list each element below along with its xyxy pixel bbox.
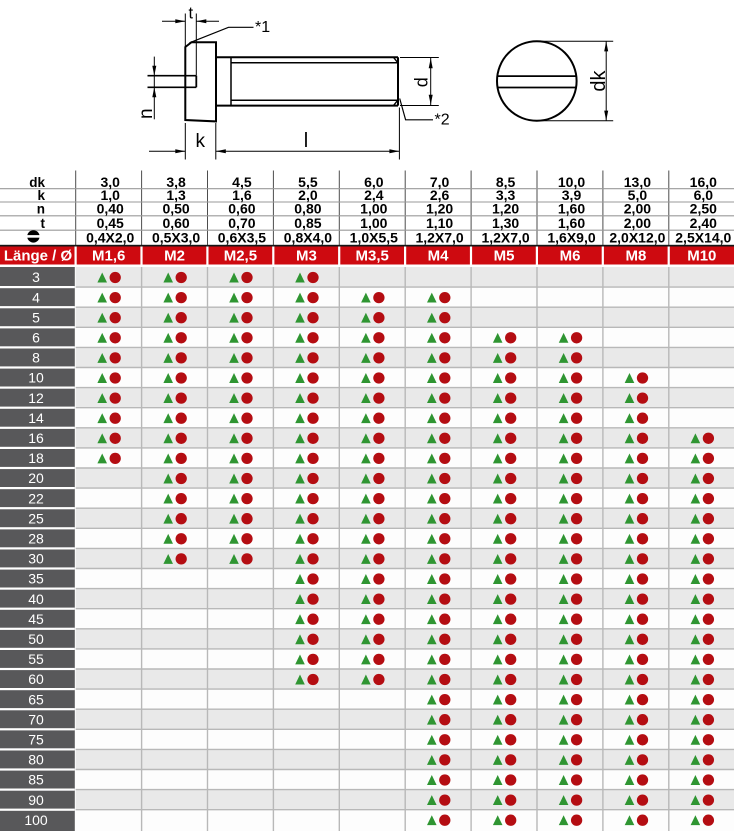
svg-text:M2: M2 [164, 248, 185, 265]
svg-text:M2,5: M2,5 [224, 248, 257, 265]
svg-text:6: 6 [32, 330, 40, 346]
svg-text:80: 80 [28, 752, 44, 768]
svg-text:70: 70 [28, 711, 44, 727]
svg-text:1,2X7,0: 1,2X7,0 [481, 230, 529, 246]
svg-text:22: 22 [28, 490, 44, 506]
svg-text:0,60: 0,60 [162, 215, 189, 231]
svg-text:t: t [41, 216, 46, 231]
svg-text:0,6X3,5: 0,6X3,5 [218, 230, 266, 246]
svg-text:*1: *1 [255, 19, 270, 36]
svg-text:25: 25 [28, 510, 44, 526]
svg-text:18: 18 [28, 450, 44, 466]
svg-text:M10: M10 [687, 248, 716, 265]
svg-text:0,70: 0,70 [228, 215, 255, 231]
svg-text:n: n [136, 108, 157, 119]
svg-text:M3,5: M3,5 [356, 248, 389, 265]
svg-text:0,4X2,0: 0,4X2,0 [86, 230, 134, 246]
svg-text:100: 100 [24, 812, 48, 828]
svg-text:5: 5 [32, 309, 40, 325]
svg-text:30: 30 [28, 551, 44, 567]
svg-text:50: 50 [28, 631, 44, 647]
svg-text:1,10: 1,10 [426, 215, 453, 231]
svg-text:12: 12 [28, 390, 44, 406]
svg-text:35: 35 [28, 571, 44, 587]
svg-text:8: 8 [32, 350, 40, 366]
svg-text:10: 10 [28, 370, 44, 386]
svg-text:1,6X9,0: 1,6X9,0 [547, 230, 595, 246]
svg-text:*2: *2 [435, 112, 450, 129]
svg-text:85: 85 [28, 772, 44, 788]
svg-text:d: d [411, 77, 431, 87]
svg-text:t: t [189, 4, 194, 22]
svg-text:Länge / Ø: Länge / Ø [4, 248, 73, 265]
svg-text:3: 3 [32, 269, 40, 285]
svg-text:0,5X3,0: 0,5X3,0 [152, 230, 200, 246]
svg-text:0,45: 0,45 [97, 215, 124, 231]
svg-text:16: 16 [28, 430, 44, 446]
svg-text:0,8X4,0: 0,8X4,0 [284, 230, 332, 246]
svg-text:2,40: 2,40 [690, 215, 717, 231]
svg-text:2,5X14,0: 2,5X14,0 [675, 230, 731, 246]
svg-text:1,60: 1,60 [558, 215, 585, 231]
svg-text:40: 40 [28, 591, 44, 607]
svg-text:1,2X7,0: 1,2X7,0 [415, 230, 463, 246]
svg-text:1,00: 1,00 [360, 215, 387, 231]
svg-text:60: 60 [28, 671, 44, 687]
svg-text:M8: M8 [625, 248, 646, 265]
svg-text:90: 90 [28, 792, 44, 808]
svg-text:k: k [195, 131, 205, 152]
svg-text:dk: dk [588, 69, 610, 91]
svg-text:M5: M5 [494, 248, 515, 265]
svg-text:65: 65 [28, 691, 44, 707]
svg-text:M3: M3 [296, 248, 317, 265]
svg-text:l: l [304, 130, 308, 152]
svg-text:75: 75 [28, 732, 44, 748]
svg-text:1,30: 1,30 [492, 215, 519, 231]
svg-text:55: 55 [28, 651, 44, 667]
svg-text:1,0X5,5: 1,0X5,5 [350, 230, 398, 246]
svg-text:2,0X12,0: 2,0X12,0 [609, 230, 665, 246]
svg-text:4: 4 [32, 289, 40, 305]
svg-text:2,00: 2,00 [624, 215, 651, 231]
svg-text:M4: M4 [428, 248, 449, 265]
svg-text:n: n [37, 202, 45, 217]
svg-text:M6: M6 [560, 248, 581, 265]
svg-text:0,85: 0,85 [294, 215, 321, 231]
svg-text:M1,6: M1,6 [92, 248, 125, 265]
svg-text:28: 28 [28, 531, 44, 547]
svg-text:20: 20 [28, 470, 44, 486]
svg-text:45: 45 [28, 611, 44, 627]
svg-text:14: 14 [28, 410, 44, 426]
